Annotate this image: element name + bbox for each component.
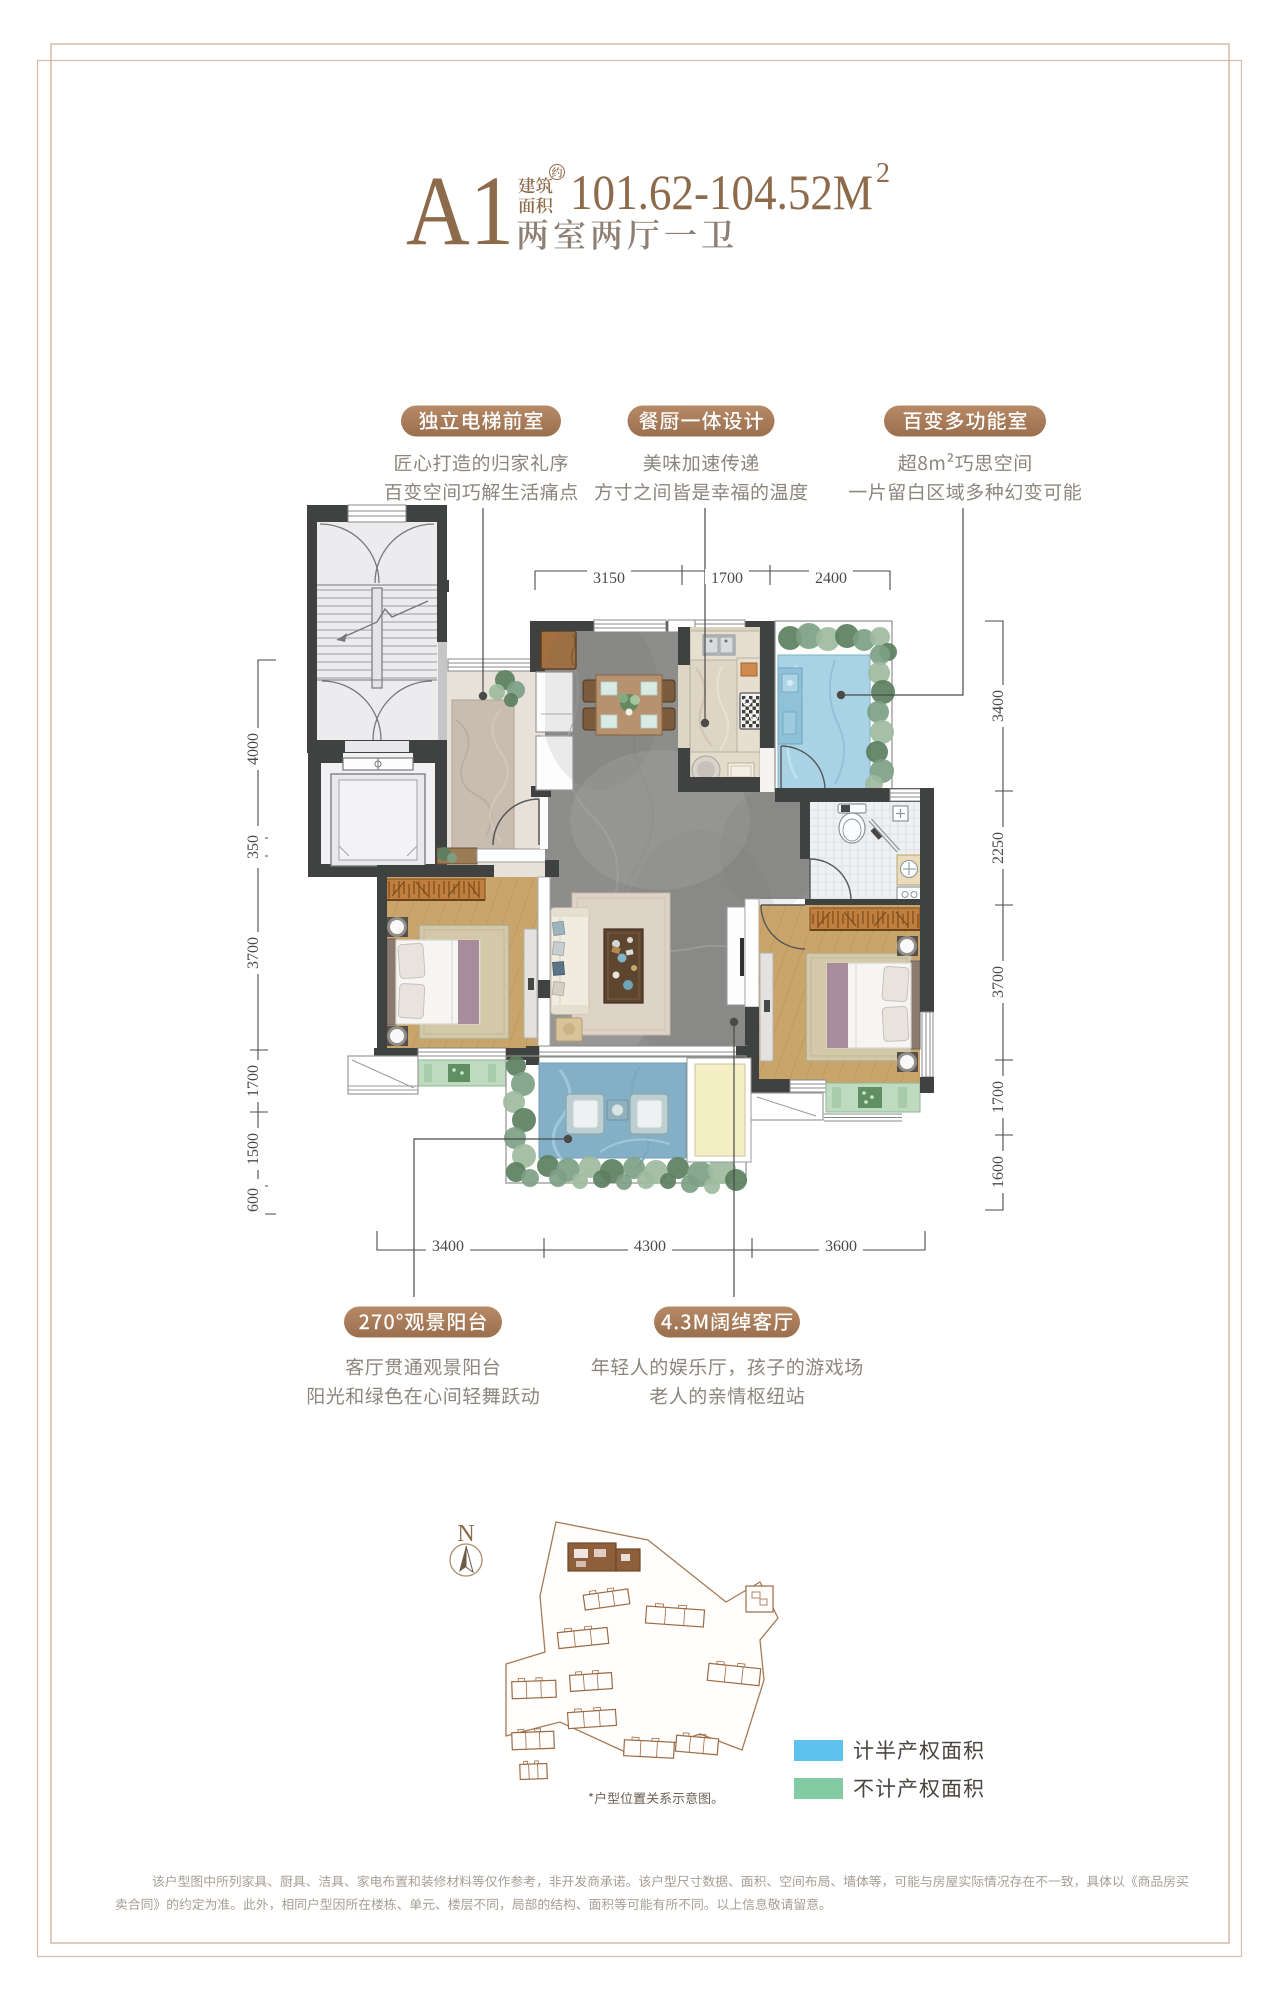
svg-text:4300: 4300 bbox=[634, 1238, 666, 1255]
svg-text:1700: 1700 bbox=[990, 1081, 1007, 1113]
svg-text:3400: 3400 bbox=[990, 690, 1007, 722]
svg-text:3700: 3700 bbox=[990, 966, 1007, 998]
svg-text:1700: 1700 bbox=[245, 1065, 262, 1097]
svg-text:2: 2 bbox=[876, 158, 890, 189]
svg-text:101.62-104.52M: 101.62-104.52M bbox=[570, 164, 873, 220]
svg-text:350: 350 bbox=[245, 835, 262, 859]
svg-text:2250: 2250 bbox=[990, 832, 1007, 864]
svg-text:3700: 3700 bbox=[245, 937, 262, 969]
svg-text:1700: 1700 bbox=[711, 570, 743, 587]
svg-text:N: N bbox=[457, 1521, 474, 1547]
svg-text:3600: 3600 bbox=[825, 1238, 857, 1255]
svg-text:1500: 1500 bbox=[245, 1133, 262, 1165]
svg-text:600: 600 bbox=[245, 1188, 262, 1212]
svg-text:3150: 3150 bbox=[593, 570, 625, 587]
svg-text:1600: 1600 bbox=[990, 1156, 1007, 1188]
svg-text:2400: 2400 bbox=[815, 570, 847, 587]
svg-text:3400: 3400 bbox=[432, 1238, 464, 1255]
svg-text:A1: A1 bbox=[406, 155, 514, 266]
svg-text:4000: 4000 bbox=[245, 733, 262, 765]
